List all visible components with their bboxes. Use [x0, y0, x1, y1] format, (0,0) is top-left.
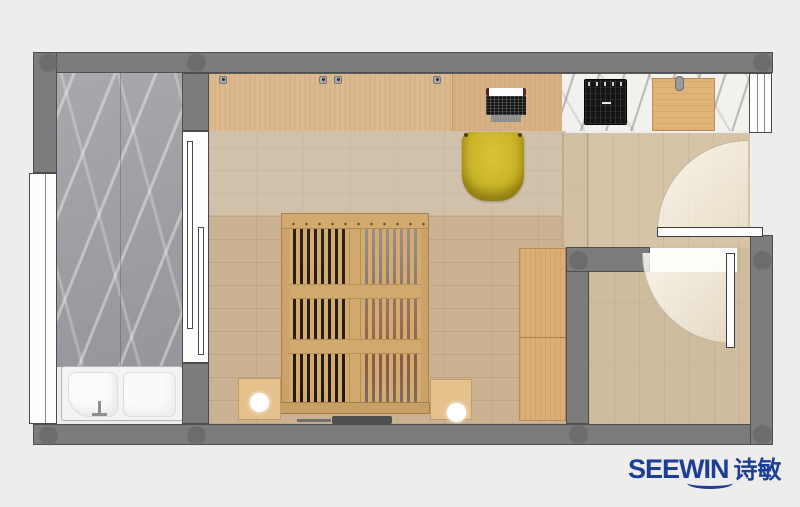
- desk-hinge-1: [219, 76, 227, 84]
- wardrobe-seam: [520, 337, 565, 338]
- bed-headboard: [282, 214, 428, 229]
- wardrobe: [519, 248, 566, 421]
- desk-hinge-2: [319, 76, 327, 84]
- laptop-keyboard: [486, 96, 526, 115]
- bathtub-faucet-spout: [92, 413, 107, 416]
- cooktop: [584, 79, 627, 125]
- pillar-smallroom-br: [753, 425, 772, 444]
- window-left: [29, 173, 57, 424]
- floor-plan-canvas: SEEWIN诗敏: [0, 0, 800, 507]
- bed-rail-right: [421, 229, 428, 402]
- window-left-mullion: [45, 174, 46, 423]
- sliding-door-track: [182, 131, 209, 363]
- floor-mat-line: [297, 419, 331, 422]
- window-top-right: [749, 73, 772, 133]
- laptop-screen: [486, 88, 526, 96]
- bed-slats-left: [289, 229, 349, 402]
- bed-foot-board: [277, 402, 430, 414]
- window-tr-mullion-1: [757, 74, 758, 132]
- bathtub-basin-left: [68, 372, 118, 417]
- floor-mat-dark: [332, 416, 392, 424]
- pillar-top-right: [753, 53, 772, 72]
- pillar-smallroom-bl: [569, 425, 588, 444]
- brand-logo-swoosh: [687, 477, 733, 489]
- wall-bath-divider-upper: [182, 73, 209, 131]
- nightstand-right: [430, 379, 472, 420]
- desk-chair: [462, 132, 524, 201]
- sliding-door-panel-2: [198, 227, 204, 355]
- chair-pin-left: [464, 133, 468, 137]
- downlight-right: [447, 403, 466, 422]
- bed-center-rail: [349, 229, 361, 402]
- cooktop-handle: [602, 102, 611, 104]
- wall-bottom: [33, 424, 773, 445]
- chair-pin-right: [518, 133, 522, 137]
- cooktop-controls: [588, 82, 624, 86]
- entry-door-leaf: [657, 227, 763, 237]
- bed-crossband-1: [289, 284, 421, 299]
- desk-hinge-4: [433, 76, 441, 84]
- pillar-top-mid: [187, 53, 206, 72]
- wall-smallroom-left: [566, 247, 589, 424]
- window-tr-mullion-2: [764, 74, 765, 132]
- hallway-strip-floor: [562, 133, 588, 247]
- pillar-bottom-mid: [187, 426, 206, 445]
- pillar-smallroom-tr: [753, 251, 772, 270]
- downlight-left: [250, 393, 269, 412]
- pillar-bottom-left: [39, 426, 58, 445]
- laptop: [486, 88, 526, 122]
- laptop-base: [491, 115, 521, 122]
- brand-logo: SEEWIN诗敏: [628, 450, 798, 485]
- sliding-door-panel-1: [187, 141, 193, 329]
- bed: [281, 213, 429, 403]
- wall-bath-divider-lower: [182, 363, 209, 424]
- bed-rail-left: [282, 229, 289, 402]
- bathroom-tile-seam: [120, 73, 121, 367]
- brand-logo-cjk: 诗敏: [734, 457, 782, 484]
- pillar-smallroom-tl: [569, 251, 588, 270]
- cutting-board-handle: [675, 76, 684, 91]
- desk-hinge-3: [334, 76, 342, 84]
- bathtub-basin-right: [123, 372, 176, 417]
- pillar-top-left: [39, 53, 58, 72]
- small-room-door-leaf: [726, 253, 735, 348]
- bed-crossband-2: [289, 339, 421, 354]
- wall-top: [33, 52, 773, 73]
- bathtub: [61, 366, 183, 421]
- nightstand-left: [238, 378, 281, 420]
- bed-slats-right: [361, 229, 421, 402]
